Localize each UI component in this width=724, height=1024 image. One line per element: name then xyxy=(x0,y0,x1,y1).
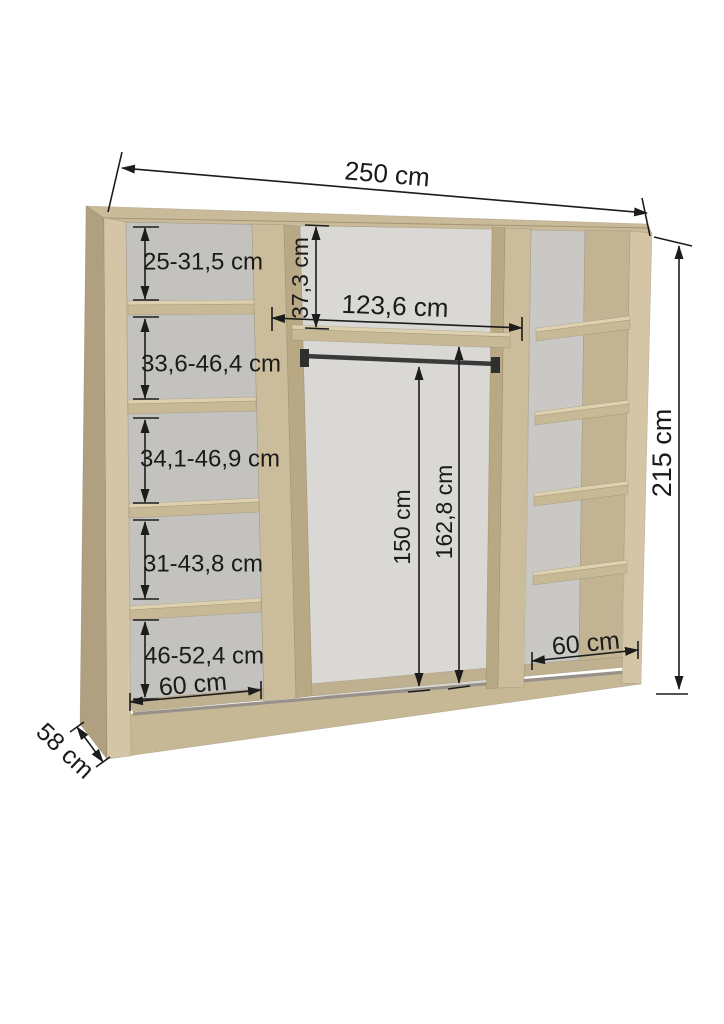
divider-right xyxy=(486,227,531,689)
tick xyxy=(305,328,329,329)
dim-left-shelf-range-4-label: 31-43,8 cm xyxy=(143,550,263,577)
dim-total-width-label: 250 cm xyxy=(343,155,431,192)
dim-left-shelf-range-3-label: 34,1-46,9 cm xyxy=(140,445,280,472)
dim-total-height-label: 215 cm xyxy=(647,409,677,498)
extension-line xyxy=(108,152,122,212)
hanging-rail-bracket-left xyxy=(300,349,309,367)
extension-line xyxy=(654,237,692,246)
left-side-front-band xyxy=(104,218,131,759)
dim-left-width-label: 60 cm xyxy=(158,668,228,702)
left-side-outer-face xyxy=(80,206,107,759)
shelf-front-band xyxy=(128,304,254,315)
dim-left-shelf-range-2-label: 33,6-46,4 cm xyxy=(141,350,281,377)
left-side-panel xyxy=(80,206,131,759)
tick xyxy=(305,225,329,226)
right-side-inner-face xyxy=(579,230,630,661)
wardrobe-diagram-canvas: 250 cm 215 cm 58 cm 37,3 cm 123,6 cm 150… xyxy=(0,0,724,1024)
dim-middle-height-label: 162,8 cm xyxy=(431,465,457,560)
back-panel-right-column xyxy=(525,229,585,668)
dim-middle-width-label: 123,6 cm xyxy=(341,289,449,323)
hanging-rail-bracket-right xyxy=(491,357,500,373)
right-side-panel xyxy=(579,230,652,684)
dim-left-shelf-range-5-label: 46-52,4 cm xyxy=(144,642,264,669)
dim-left-shelf-range-1-label: 25-31,5 cm xyxy=(143,248,263,275)
dim-top-shelf-height-label: 37,3 cm xyxy=(287,237,313,319)
wardrobe-dimension-drawing: 250 cm 215 cm 58 cm 37,3 cm 123,6 cm 150… xyxy=(0,0,724,1024)
dim-rod-height-label: 150 cm xyxy=(389,489,415,564)
